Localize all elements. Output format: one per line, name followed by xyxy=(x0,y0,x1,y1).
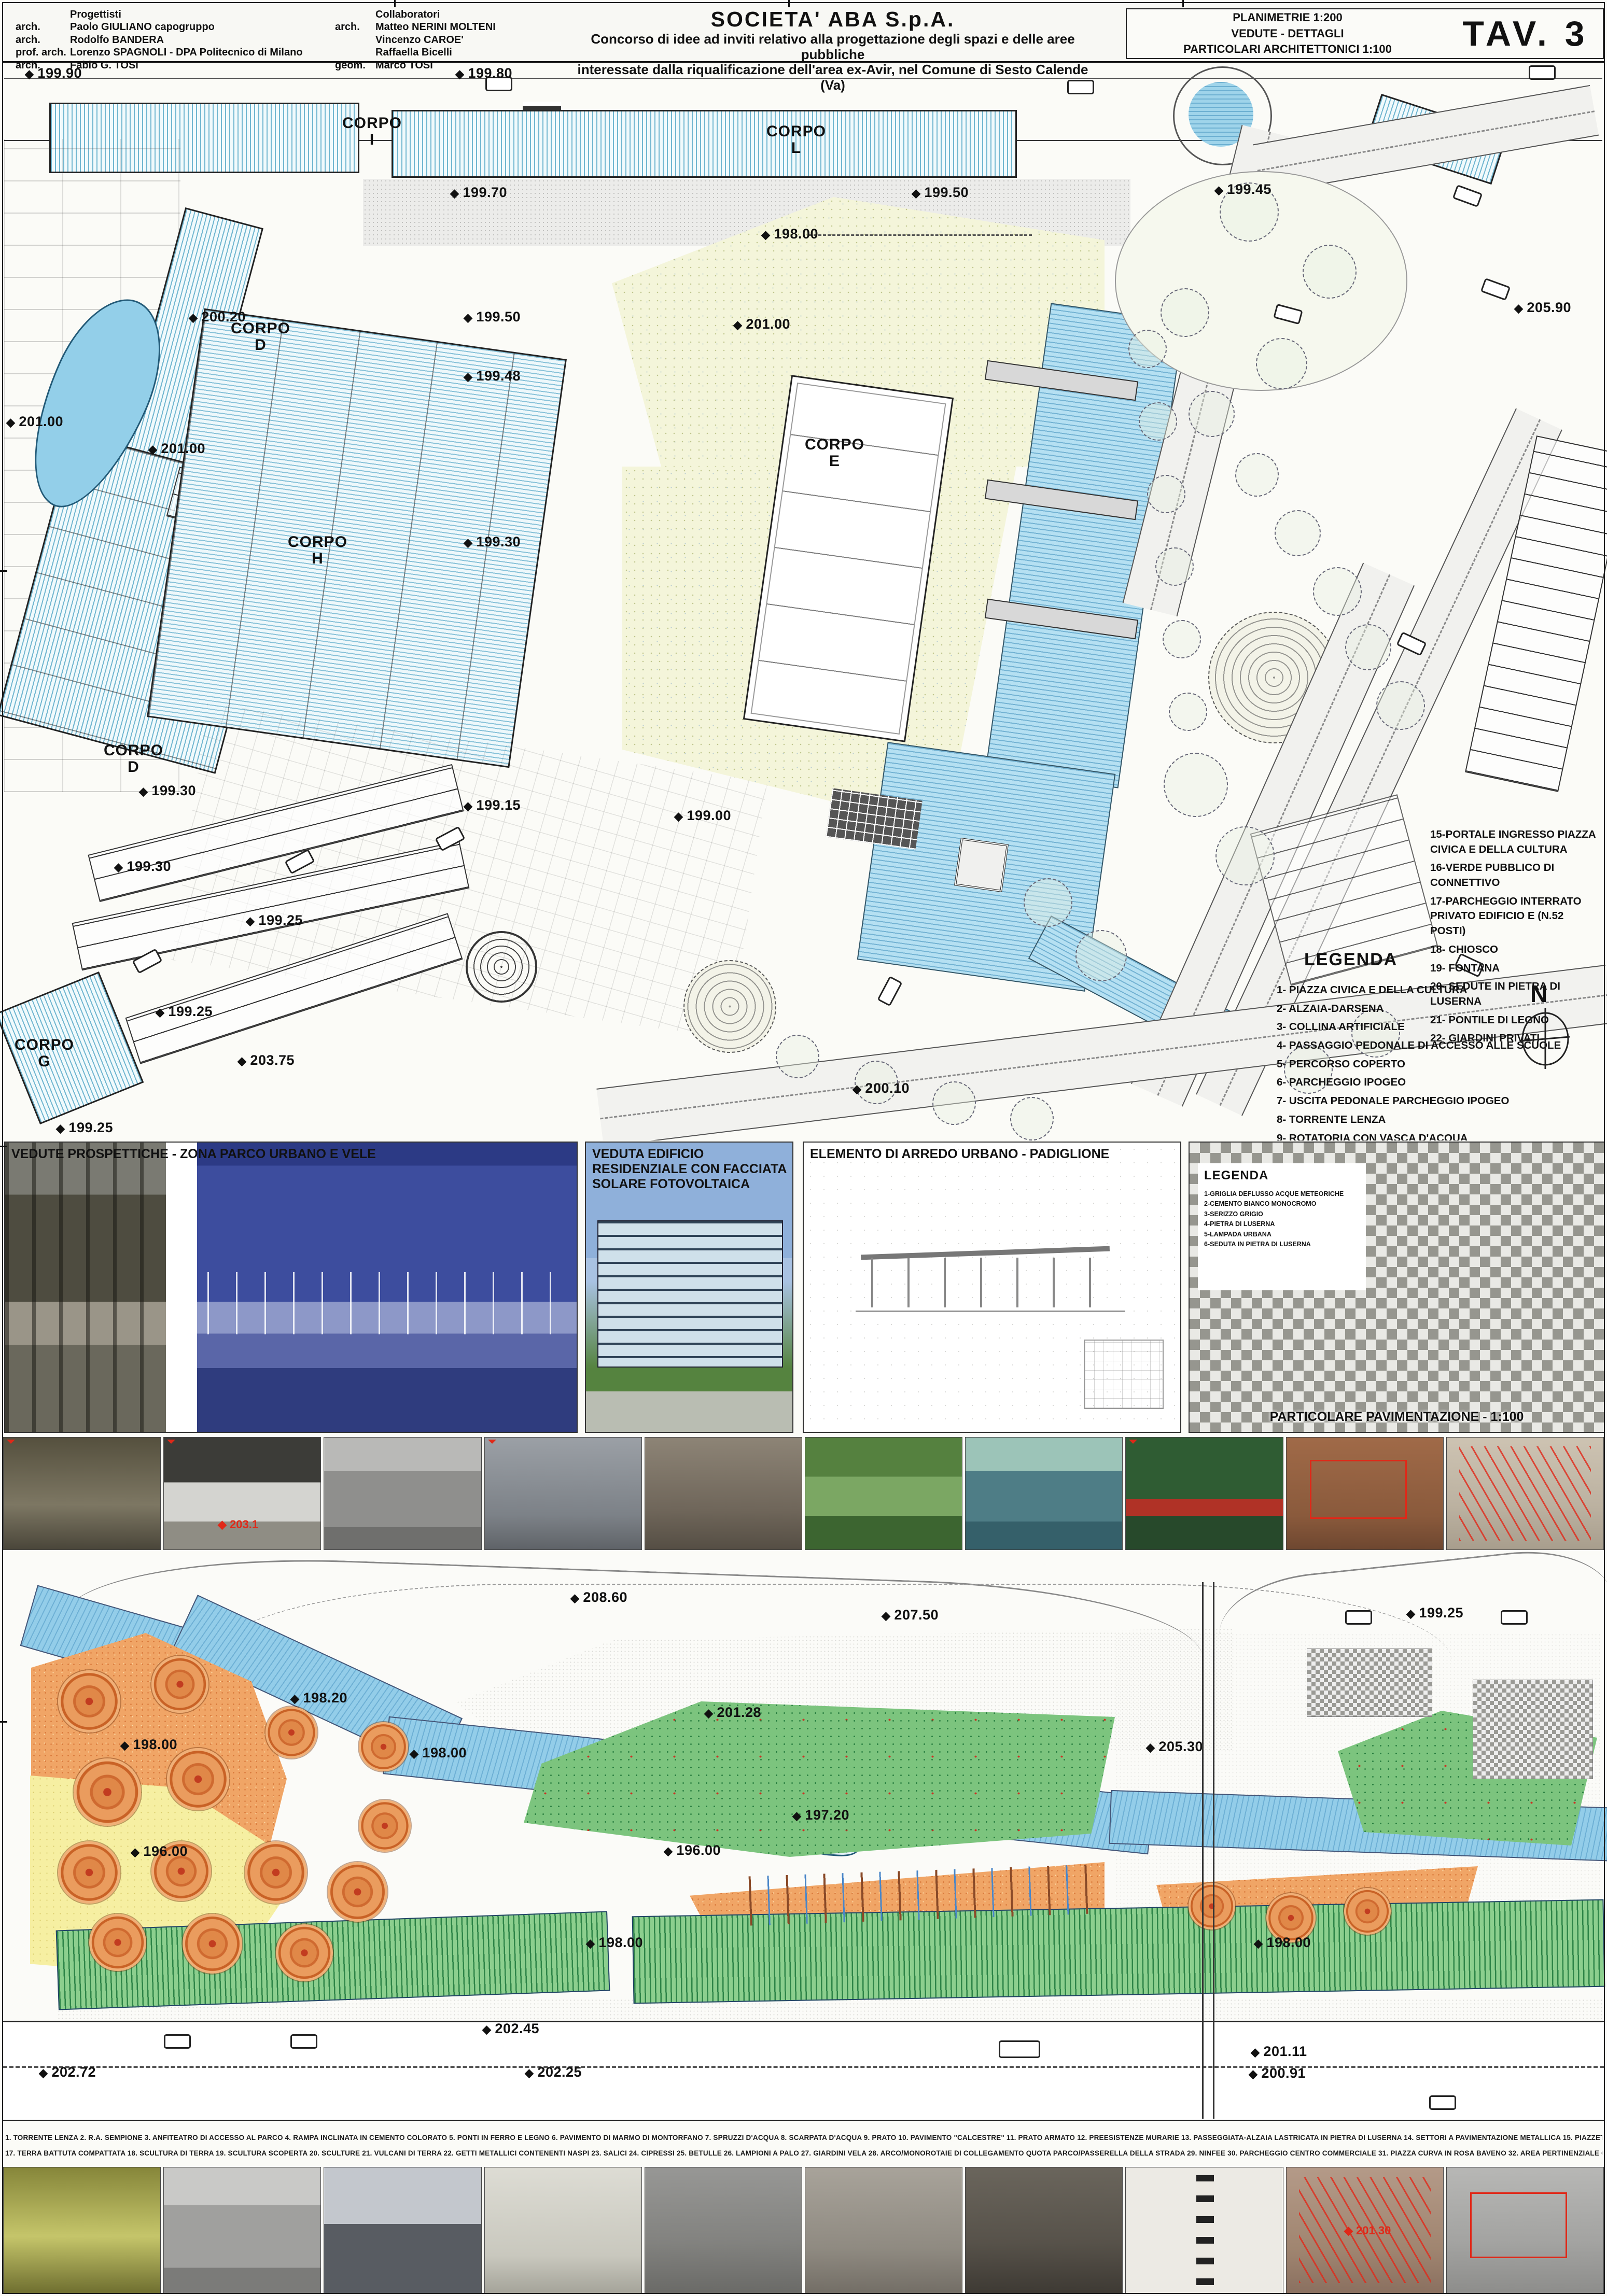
panel-title: VEDUTA EDIFICIO RESIDENZIALE CON FACCIAT… xyxy=(592,1147,792,1192)
designer-title: arch. xyxy=(16,34,70,46)
paving-legend-item: 4-PIETRA DI LUSERNA xyxy=(1204,1219,1360,1229)
designer-title: arch. xyxy=(16,21,70,33)
frame-tick xyxy=(394,0,396,7)
collaborator-name: Vincenzo CAROE' xyxy=(375,34,496,46)
photo-thumbnail xyxy=(324,1437,481,1550)
road-centerline xyxy=(3,2066,1604,2068)
designer-row: arch. Rodolfo BANDERA xyxy=(16,34,303,46)
paving-legend-item: 1-GRIGLIA DEFLUSSO ACQUE METEORICHE xyxy=(1204,1189,1360,1199)
legend-item: 8- TORRENTE LENZA xyxy=(1277,1112,1588,1128)
north-arrow: N xyxy=(1517,980,1574,1073)
designers-column: Progettisti arch. Paolo GIULIANO capogru… xyxy=(16,8,303,72)
red-elevation-note: ◆ 201.30 xyxy=(1344,2224,1391,2237)
scale-line: PLANIMETRIE 1:200 xyxy=(1127,10,1448,26)
frame-tick xyxy=(0,1721,7,1723)
car-icon xyxy=(1452,185,1483,207)
photo-thumbnail xyxy=(163,2167,321,2293)
paving-legend-item: 5-LAMPADA URBANA xyxy=(1204,1230,1360,1239)
survey-diamond-icon xyxy=(56,1120,68,1135)
collaborator-title xyxy=(335,34,375,46)
legend-title: LEGENDA xyxy=(1304,950,1398,970)
tree-symbol xyxy=(1169,693,1207,731)
paving-legend-item: 6-SEDUTA IN PIETRA DI LUSERNA xyxy=(1204,1239,1360,1249)
pan­el-residential-view: VEDUTA EDIFICIO RESIDENZIALE CON FACCIAT… xyxy=(585,1142,793,1433)
paving-legend-item: 2-CEMENTO BIANCO MONOCROMO xyxy=(1204,1199,1360,1209)
photo-thumbnail xyxy=(3,2167,161,2293)
panel-title: ELEMENTO DI ARREDO URBANO - PADIGLIONE xyxy=(810,1147,1109,1162)
paving-legend-list: 1-GRIGLIA DEFLUSSO ACQUE METEORICHE2-CEM… xyxy=(1204,1189,1360,1249)
pavilion-posts xyxy=(871,1258,1099,1307)
photo-thumbnail xyxy=(1446,1437,1604,1550)
sail-masts xyxy=(207,1272,565,1334)
photo-thumbnail xyxy=(1286,1437,1444,1550)
artificial-hill xyxy=(683,960,776,1053)
drawing-sheet: Progettisti arch. Paolo GIULIANO capogru… xyxy=(0,0,1607,2296)
reference-photo-strip xyxy=(3,1437,1604,1550)
frame-tick xyxy=(0,1146,7,1147)
paving-legend-title: LEGENDA xyxy=(1204,1168,1360,1183)
east-gate-tower xyxy=(954,838,1009,892)
legend-item: 18- CHIOSCO xyxy=(1430,942,1601,957)
red-elevation-note: ◆ 203.1 xyxy=(218,1518,258,1531)
south-road xyxy=(3,2021,1604,2121)
photo-thumbnail xyxy=(1125,2167,1283,2293)
tree-symbol xyxy=(1164,753,1228,817)
section-line xyxy=(1202,1582,1214,2119)
building-corpo-h xyxy=(147,308,567,768)
collaborator-name: Matteo NERINI MOLTENI xyxy=(375,21,496,33)
legend-item: 17-PARCHEGGIO INTERRATO PRIVATO EDIFICIO… xyxy=(1430,894,1601,939)
collaborator-row: arch. Matteo NERINI MOLTENI xyxy=(335,21,496,33)
photo-thumbnail xyxy=(163,1437,321,1550)
collaborator-row: geom. Marco TOSI xyxy=(335,59,496,72)
frame-tick xyxy=(788,0,790,7)
collaborators-label: Collaboratori xyxy=(335,8,496,21)
car-icon xyxy=(1480,278,1511,301)
photo-separator xyxy=(166,1143,197,1432)
photo-thumbnail xyxy=(484,2167,642,2293)
pavilion-baseline xyxy=(856,1311,1125,1312)
project-title-block: SOCIETA' ABA S.p.A. Concorso di idee ad … xyxy=(574,7,1092,93)
legend-item: 7- USCITA PEDONALE PARCHEGGIO IPOGEO xyxy=(1277,1094,1588,1109)
scale-line: PARTICOLARI ARCHITETTONICI 1:100 xyxy=(1127,41,1448,58)
pavilion-plan-diagram xyxy=(1084,1340,1164,1409)
glass-building-render xyxy=(597,1220,783,1368)
tree-symbol xyxy=(1235,453,1279,497)
tree-symbol xyxy=(1275,510,1321,556)
legend-item: 22- GIARDINI PRIVATI xyxy=(1430,1031,1601,1046)
elevation-marker: 205.90 xyxy=(1514,300,1571,316)
building-corpo-l xyxy=(392,110,1017,178)
panel-title: VEDUTE PROSPETTICHE - ZONA PARCO URBANO … xyxy=(11,1147,376,1162)
collaborator-row: Vincenzo CAROE' xyxy=(335,34,496,46)
collaborators-list: arch. Matteo NERINI MOLTENI Vincenzo CAR… xyxy=(335,21,496,72)
designer-title: prof. arch. xyxy=(16,46,70,59)
frame-tick xyxy=(0,570,7,572)
designer-row: arch. Paolo GIULIANO capogruppo xyxy=(16,21,303,33)
legend-column-2: 15-PORTALE INGRESSO PIAZZA CIVICA E DELL… xyxy=(1430,827,1601,1050)
compass-icon xyxy=(1517,1008,1574,1070)
materials-caption-line-2: 17. TERRA BATTUTA COMPATTATA 18. SCULTUR… xyxy=(5,2149,1602,2157)
legend-item: 6- PARCHEGGIO IPOGEO xyxy=(1277,1075,1588,1090)
photo-thumbnail xyxy=(3,1437,161,1550)
designers-label: Progettisti xyxy=(16,8,303,21)
photo-thumbnail xyxy=(805,1437,962,1550)
elevation-value: 205.90 xyxy=(1527,300,1571,315)
elevation-value: 203.75 xyxy=(250,1052,295,1068)
survey-diamond-icon xyxy=(1514,300,1527,315)
legend-item: 21- PONTILE DI LEGNO xyxy=(1430,1013,1601,1028)
designer-name: Paolo GIULIANO capogruppo xyxy=(70,21,303,33)
car-icon xyxy=(877,976,902,1006)
designer-name: Lorenzo SPAGNOLI - DPA Politecnico di Mi… xyxy=(70,46,303,59)
client-name: SOCIETA' ABA S.p.A. xyxy=(574,7,1092,32)
park-photo xyxy=(5,1143,166,1432)
scale-list: PLANIMETRIE 1:200VEDUTE - DETTAGLIPARTIC… xyxy=(1127,10,1448,58)
legend-item: 19- FONTANA xyxy=(1430,961,1601,976)
elevation-value: 199.50 xyxy=(476,309,521,325)
legend-item: 15-PORTALE INGRESSO PIAZZA CIVICA E DELL… xyxy=(1430,827,1601,857)
north-letter: N xyxy=(1530,980,1574,1008)
designers-list: arch. Paolo GIULIANO capogruppo arch. Ro… xyxy=(16,21,303,72)
panel-pavilion: ELEMENTO DI ARREDO URBANO - PADIGLIONE xyxy=(803,1142,1181,1433)
competition-subtitle-1: Concorso di idee ad inviti relativo alla… xyxy=(574,32,1092,62)
photo-thumbnail xyxy=(645,1437,802,1550)
red-elevation-value: 201.30 xyxy=(1356,2224,1391,2237)
green-mound xyxy=(1115,171,1407,391)
collaborators-column: Collaboratori arch. Matteo NERINI MOLTEN… xyxy=(335,8,496,72)
collaborator-title: geom. xyxy=(335,59,375,72)
paving-legend-item: 3-SERIZZO GRIGIO xyxy=(1204,1209,1360,1219)
designer-title: arch. xyxy=(16,59,70,72)
elevation-value: 199.25 xyxy=(68,1120,113,1135)
designer-row: prof. arch. Lorenzo SPAGNOLI - DPA Polit… xyxy=(16,46,303,59)
tree-trunks-texture xyxy=(5,1143,166,1432)
tree-symbol xyxy=(1163,620,1201,658)
sheet-number: TAV. 3 xyxy=(1448,13,1603,54)
paving-patch xyxy=(1307,1649,1432,1717)
title-block: Progettisti arch. Paolo GIULIANO capogru… xyxy=(3,3,1604,63)
red-elevation-value: 203.1 xyxy=(230,1518,258,1531)
collaborator-title: arch. xyxy=(335,21,375,33)
collaborator-name: Raffaella Bicelli xyxy=(375,46,496,59)
elevation-marker: 203.75 xyxy=(237,1052,295,1068)
scale-line: VEDUTE - DETTAGLI xyxy=(1127,26,1448,42)
legend-item: 20- SEDUTE IN PIETRA DI LUSERNA xyxy=(1430,979,1601,1009)
collaborator-row: Raffaella Bicelli xyxy=(335,46,496,59)
survey-diamond-icon xyxy=(237,1052,250,1068)
designer-name: Rodolfo BANDERA xyxy=(70,34,303,46)
flow-direction-arrow xyxy=(809,234,1032,236)
photo-thumbnail xyxy=(1125,1437,1283,1550)
panel-paving-detail: LEGENDA 1-GRIGLIA DEFLUSSO ACQUE METEORI… xyxy=(1189,1142,1605,1433)
designer-name: Fabio G. TOSI xyxy=(70,59,303,72)
night-render xyxy=(197,1143,577,1432)
designers-block: Progettisti arch. Paolo GIULIANO capogru… xyxy=(16,8,303,72)
frame-tick xyxy=(1182,0,1184,7)
paving-legend: LEGENDA 1-GRIGLIA DEFLUSSO ACQUE METEORI… xyxy=(1198,1163,1366,1290)
photo-thumbnail xyxy=(645,2167,802,2293)
photo-thumbnail xyxy=(965,2167,1123,2293)
survey-diamond-icon xyxy=(464,309,476,325)
elevation-marker: 199.25 xyxy=(56,1120,113,1136)
collaborators-block: Collaboratori arch. Matteo NERINI MOLTEN… xyxy=(335,8,496,72)
competition-subtitle-2: interessate dalla riqualificazione dell'… xyxy=(574,62,1092,93)
photo-thumbnail xyxy=(324,2167,481,2293)
elevation-marker: 199.50 xyxy=(464,309,521,325)
scale-and-sheet-box: PLANIMETRIE 1:200VEDUTE - DETTAGLIPARTIC… xyxy=(1126,8,1604,59)
photo-thumbnail xyxy=(1446,2167,1604,2293)
legend-item: 16-VERDE PUBBLICO DI CONNETTIVO xyxy=(1430,861,1601,890)
panel-perspective-views: VEDUTE PROSPETTICHE - ZONA PARCO URBANO … xyxy=(4,1142,578,1433)
collaborator-name: Marco TOSI xyxy=(375,59,496,72)
spiral-feature xyxy=(466,931,537,1003)
paving-caption: PARTICOLARE PAVIMENTAZIONE - 1:100 xyxy=(1190,1410,1604,1425)
photo-thumbnail xyxy=(484,1437,642,1550)
photo-thumbnail xyxy=(965,1437,1123,1550)
paving-patch xyxy=(1473,1680,1593,1779)
materials-caption-line-1: 1. TORRENTE LENZA 2. R.A. SEMPIONE 3. AN… xyxy=(5,2134,1602,2142)
tree-symbol xyxy=(1010,1097,1054,1140)
photo-thumbnail xyxy=(805,2167,962,2293)
building-corpo-g xyxy=(0,971,144,1124)
designer-row: arch. Fabio G. TOSI xyxy=(16,59,303,72)
views-band: VEDUTE PROSPETTICHE - ZONA PARCO URBANO … xyxy=(3,1140,1604,1434)
collaborator-title xyxy=(335,46,375,59)
